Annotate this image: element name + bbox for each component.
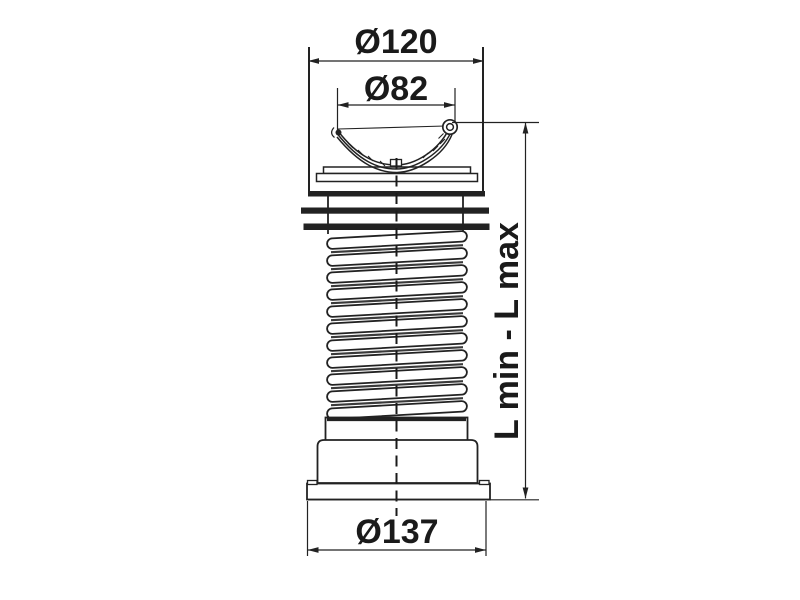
dia82-arrow-left-icon [338, 102, 349, 108]
dimension-dia120: Ø120 [308, 23, 484, 64]
dia137-arrow-left-icon [308, 547, 319, 553]
lower-connector [307, 418, 490, 500]
dia82-arrow-right-icon [444, 102, 455, 108]
saddle-membrane [332, 120, 458, 173]
saddle-bolt-inner-icon [447, 124, 454, 131]
dia120-label: Ø120 [354, 23, 437, 61]
dia137-arrow-right-icon [475, 547, 486, 553]
gasket-band-upper [301, 208, 489, 214]
length-range-label: L min - L max [488, 222, 526, 440]
gasket-bands [301, 197, 490, 235]
length-arrow-down-icon [523, 488, 529, 499]
technical-drawing-canvas: Ø120 Ø82 [0, 0, 800, 600]
dia82-label: Ø82 [364, 70, 428, 108]
flange-notch-right [480, 481, 490, 485]
saddle-rim-line [338, 126, 445, 129]
dimension-dia82: Ø82 [338, 70, 456, 132]
dia137-label: Ø137 [355, 513, 438, 551]
saddle-left-curl [332, 128, 335, 138]
length-arrow-up-icon [523, 123, 529, 134]
pan-connector-diagram: Ø120 Ø82 [0, 0, 800, 600]
flange-notch-left [308, 481, 318, 485]
connector-flange [307, 484, 490, 500]
saddle-left-knot [336, 130, 342, 136]
